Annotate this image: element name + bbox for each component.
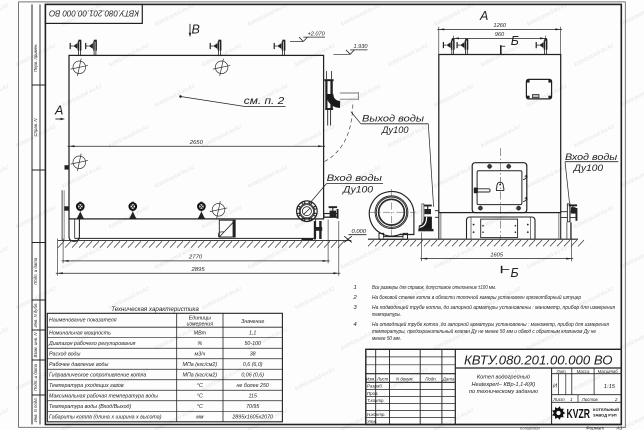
- svg-text:Все размеры для справок, допус: Все размеры для справок, допустимое откл…: [372, 285, 496, 291]
- svg-text:Инв. N дубл.: Инв. N дубл.: [33, 303, 38, 328]
- svg-text:МПа (кгс/см2): МПа (кгс/см2): [183, 373, 218, 379]
- svg-text:Подп. и дата: Подп. и дата: [33, 257, 38, 285]
- svg-text:Номинальная мощность: Номинальная мощность: [49, 331, 111, 337]
- svg-text:Ду100: Ду100: [342, 185, 374, 196]
- svg-text:0.000: 0.000: [352, 229, 367, 235]
- svg-text:А3: А3: [616, 425, 623, 430]
- svg-text:115: 115: [248, 394, 256, 400]
- svg-text:МПа (кгс/см2): МПа (кгс/см2): [183, 362, 218, 368]
- svg-text:А: А: [54, 103, 63, 117]
- svg-text:КВТУ.080.201.00.000 ВО: КВТУ.080.201.00.000 ВО: [464, 353, 613, 367]
- svg-text:Ду100: Ду100: [573, 163, 604, 174]
- svg-text:+2.070: +2.070: [308, 31, 326, 37]
- svg-text:температуры.: температуры.: [372, 312, 401, 318]
- svg-text:Справ. N: Справ. N: [33, 118, 38, 137]
- svg-text:2650: 2650: [189, 140, 204, 146]
- svg-text:Изм.: Изм.: [366, 377, 375, 382]
- svg-text:Разраб.: Разраб.: [367, 384, 383, 389]
- svg-text:Б: Б: [511, 266, 519, 280]
- svg-text:Лист: Лист: [376, 377, 389, 382]
- svg-text:Вход воды: Вход воды: [327, 173, 382, 184]
- svg-text:°С: °С: [197, 394, 203, 400]
- svg-text:по техническому заданию: по техническому заданию: [469, 389, 539, 395]
- svg-text:2895х1605х2070: 2895х1605х2070: [231, 415, 273, 421]
- svg-text:Н.контр.: Н.контр.: [367, 412, 386, 417]
- svg-text:Рабочее давление воды: Рабочее давление воды: [49, 362, 108, 368]
- svg-text:Инв. N подл.: Инв. N подл.: [33, 397, 38, 422]
- svg-text:температуры, предохранительный: температуры, предохранительный клапан Ду…: [372, 328, 596, 335]
- svg-text:Масштаб: Масштаб: [598, 369, 619, 374]
- svg-text:Формат: Формат: [586, 425, 604, 430]
- svg-text:Ду100: Ду100: [381, 125, 409, 136]
- svg-text:Котел водогрейный: Котел водогрейный: [477, 374, 530, 381]
- svg-text:0,06 (0,6): 0,06 (0,6): [241, 373, 264, 379]
- svg-text:м3/ч: м3/ч: [194, 352, 205, 358]
- svg-text:Значение: Значение: [241, 319, 264, 325]
- svg-text:На отводящей трубе котла ,до з: На отводящей трубе котла ,до запорной ар…: [372, 321, 609, 328]
- svg-text:Диапазон рабочего регулировани: Диапазон рабочего регулирования: [48, 341, 136, 347]
- svg-text:2: 2: [614, 397, 618, 402]
- svg-text:°С: °С: [197, 383, 203, 389]
- svg-text:измерения: измерения: [187, 322, 214, 328]
- svg-text:Взам. инв. N: Взам. инв. N: [33, 332, 38, 358]
- svg-text:Листов: Листов: [581, 397, 599, 402]
- svg-text:Heatexpert– КВр-1,1-К(К): Heatexpert– КВр-1,1-К(К): [471, 382, 535, 388]
- svg-text:1: 1: [354, 285, 357, 291]
- svg-text:Выход воды: Выход воды: [362, 114, 424, 125]
- svg-text:Б: Б: [511, 34, 519, 48]
- svg-text:50-100: 50-100: [244, 341, 261, 347]
- svg-text:1:15: 1:15: [604, 384, 616, 390]
- svg-text:Дата: Дата: [442, 377, 455, 382]
- svg-text:Лист: Лист: [552, 397, 565, 402]
- svg-text:0,6 (6,0): 0,6 (6,0): [243, 362, 263, 368]
- svg-text:1,1: 1,1: [249, 331, 256, 337]
- svg-text:Т.контр.: Т.контр.: [367, 398, 385, 403]
- svg-text:2895: 2895: [190, 267, 205, 273]
- svg-text:В: В: [192, 23, 200, 37]
- svg-text:N докум.: N докум.: [396, 377, 414, 382]
- svg-text:МВт: МВт: [194, 331, 207, 337]
- svg-text:КВТУ.080.201.00.000 ВО: КВТУ.080.201.00.000 ВО: [48, 8, 139, 17]
- svg-text:%: %: [197, 341, 202, 347]
- svg-text:На подводящей трубе котла, д: На подводящей трубе котла, до запорной а…: [372, 304, 615, 311]
- svg-text:1605: 1605: [490, 252, 503, 258]
- svg-text:Подп.: Подп.: [425, 377, 437, 382]
- svg-text:КОТЕЛЬНЫЙ: КОТЕЛЬНЫЙ: [593, 407, 619, 412]
- svg-text:Наименование показателя: Наименование показателя: [49, 318, 117, 324]
- svg-text:960: 960: [495, 32, 505, 38]
- svg-text:мм: мм: [196, 415, 204, 421]
- svg-text:Пров.: Пров.: [367, 391, 379, 396]
- svg-text:см. п. 2: см. п. 2: [244, 96, 285, 107]
- svg-text:Температура уходящих газов: Температура уходящих газов: [49, 383, 124, 389]
- svg-text:4: 4: [354, 322, 357, 328]
- svg-text:менее 50 мм.: менее 50 мм.: [372, 336, 401, 342]
- svg-text:Максимальная рабочая температу: Максимальная рабочая температура воды: [49, 394, 158, 400]
- svg-text:На боковой стенке котла в обла: На боковой стенке котла в области топочн…: [372, 294, 581, 301]
- svg-text:Копировал: Копировал: [520, 425, 541, 430]
- svg-text:не более 250: не более 250: [237, 383, 269, 389]
- svg-text:Техническая характеристика: Техническая характеристика: [111, 306, 199, 313]
- svg-text:KVZR: KVZR: [567, 406, 591, 421]
- svg-text:ЗАВОД РЭП: ЗАВОД РЭП: [593, 413, 617, 418]
- svg-text:38: 38: [250, 352, 256, 358]
- svg-text:Расход воды: Расход воды: [49, 352, 80, 358]
- svg-text:Гидравлическое сопротивление к: Гидравлическое сопротивление котла: [49, 373, 146, 379]
- svg-text:°С: °С: [197, 404, 203, 410]
- svg-text:А: А: [479, 9, 488, 23]
- svg-text:Масса: Масса: [577, 369, 590, 374]
- svg-text:70/95: 70/95: [246, 404, 259, 410]
- svg-text:1260: 1260: [493, 23, 506, 29]
- svg-text:Лит.: Лит.: [556, 369, 567, 374]
- svg-text:1.930: 1.930: [354, 44, 369, 50]
- svg-text:2770: 2770: [188, 255, 203, 261]
- svg-text:Подп. и дата: Подп. и дата: [33, 363, 38, 391]
- svg-text:Утв.: Утв.: [367, 419, 377, 424]
- svg-text:Перв. примен.: Перв. примен.: [33, 43, 38, 72]
- svg-text:Габариты котла (длина х ширина: Габариты котла (длина х ширина х высота): [49, 415, 162, 421]
- svg-text:Температура воды (Вход/Выход): Температура воды (Вход/Выход): [49, 404, 131, 410]
